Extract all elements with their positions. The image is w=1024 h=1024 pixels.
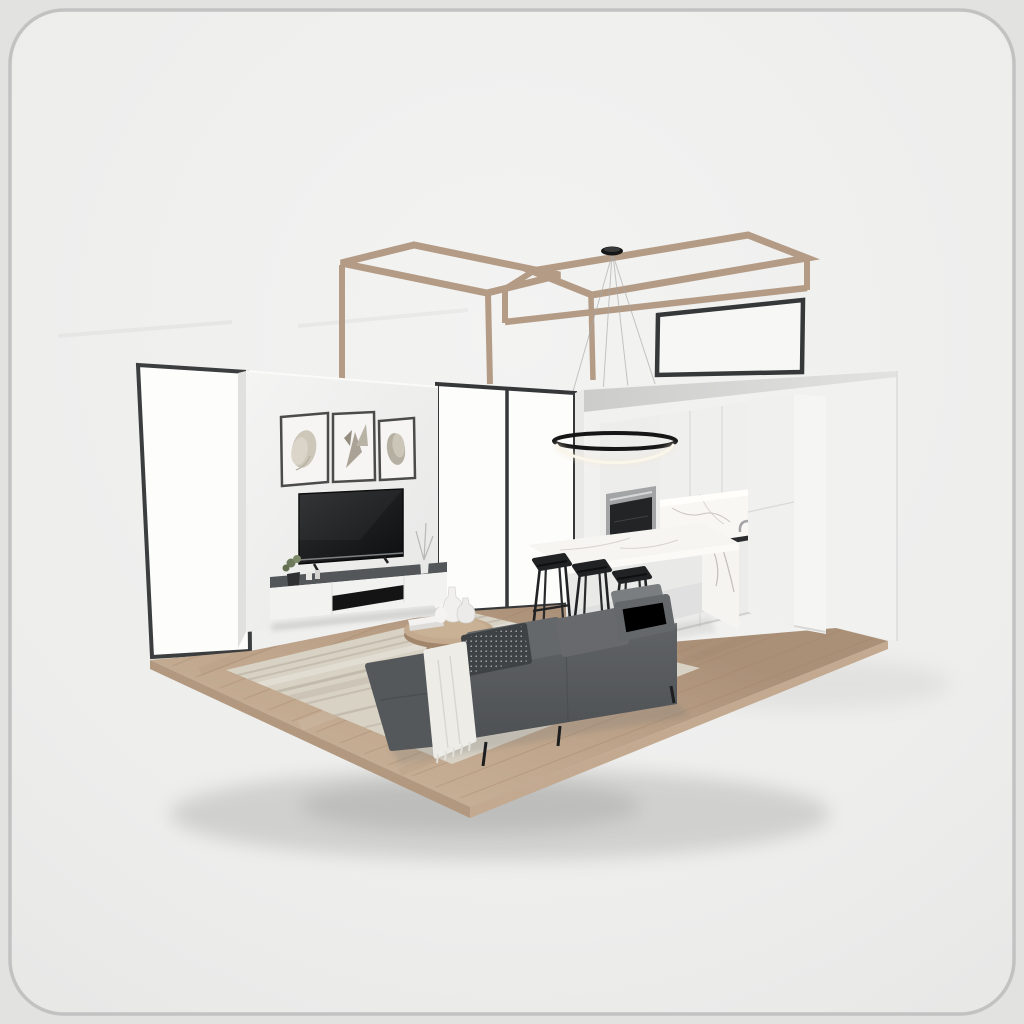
tall-cabinet-side <box>794 394 826 634</box>
glass-panel-left <box>138 365 250 657</box>
interior-render <box>0 0 1024 1024</box>
tv-wall-side <box>238 371 246 648</box>
back-cushion <box>560 611 625 653</box>
decor-cup <box>306 572 312 580</box>
clerestory-window <box>657 300 803 375</box>
art-frame-1 <box>281 413 328 486</box>
upper-cabinets <box>660 401 752 500</box>
art-frame-2 <box>333 412 375 482</box>
decor-cup <box>315 570 320 579</box>
gallery-wall-art <box>281 412 415 486</box>
sofa-leg <box>558 726 560 746</box>
back-cushion <box>618 598 671 637</box>
throw-blanket <box>426 644 474 763</box>
art-frame-3 <box>379 418 415 480</box>
render-stage <box>0 0 1024 1024</box>
wood-frame-leg <box>488 294 490 384</box>
wood-frame-leg <box>591 297 593 380</box>
